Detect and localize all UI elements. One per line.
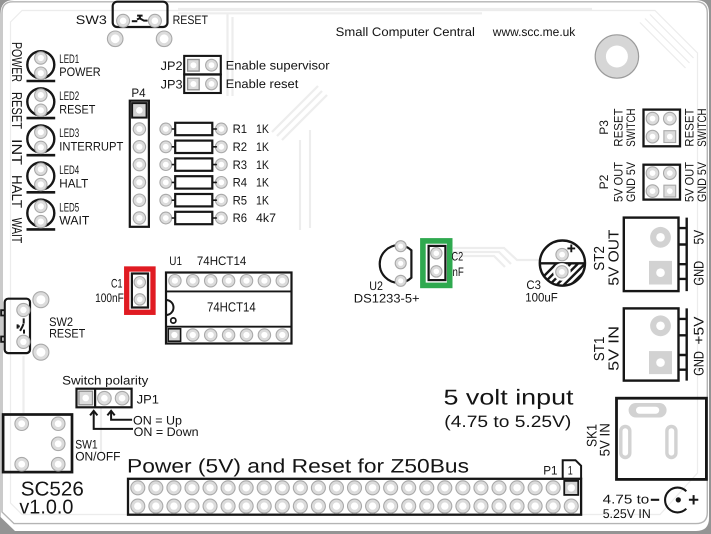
svg-text:R1: R1 — [233, 122, 248, 136]
svg-text:Switch polarity: Switch polarity — [62, 374, 149, 388]
svg-text:LED3: LED3 — [59, 126, 79, 140]
svg-text:INT: INT — [8, 139, 24, 165]
svg-text:5V IN: 5V IN — [596, 423, 612, 456]
svg-text:1K: 1K — [256, 176, 270, 190]
svg-text:74HCT14: 74HCT14 — [197, 254, 247, 268]
svg-text:LED1: LED1 — [59, 52, 79, 66]
svg-text:P1: P1 — [543, 463, 557, 477]
svg-text:JP3: JP3 — [161, 78, 183, 92]
svg-text:U1: U1 — [169, 254, 182, 268]
svg-text:Enable reset: Enable reset — [226, 77, 299, 91]
svg-text:ON = Down: ON = Down — [134, 425, 199, 439]
svg-text:1K: 1K — [256, 122, 270, 136]
svg-text:LED4: LED4 — [59, 163, 79, 177]
svg-text:ON/OFF: ON/OFF — [75, 449, 121, 463]
svg-text:GND: GND — [691, 351, 707, 376]
svg-text:SWITCH: SWITCH — [624, 109, 638, 147]
svg-text:5 volt input: 5 volt input — [444, 386, 574, 410]
svg-text:R3: R3 — [233, 158, 248, 172]
svg-text:R5: R5 — [233, 193, 248, 207]
svg-text:100nF: 100nF — [95, 291, 124, 305]
svg-text:4k7: 4k7 — [256, 211, 276, 225]
svg-text:Power (5V) and Reset for Z50Bu: Power (5V) and Reset for Z50Bus — [127, 455, 469, 477]
svg-text:4.75 to: 4.75 to — [603, 492, 650, 507]
svg-text:P4: P4 — [131, 86, 145, 100]
svg-text:RESET: RESET — [59, 102, 95, 116]
svg-text:JP1: JP1 — [137, 392, 159, 406]
svg-text:GND 5V: GND 5V — [624, 161, 638, 202]
svg-text:R4: R4 — [233, 176, 248, 190]
svg-text:v1.0.0: v1.0.0 — [19, 497, 73, 519]
svg-text:5.25V IN: 5.25V IN — [603, 506, 651, 521]
svg-text:HALT: HALT — [8, 175, 24, 208]
svg-text:1: 1 — [568, 464, 573, 478]
svg-text:RESET: RESET — [8, 92, 24, 129]
svg-text:www.scc.me.uk: www.scc.me.uk — [492, 25, 576, 39]
svg-text:POWER: POWER — [59, 65, 100, 79]
svg-text:100uF: 100uF — [525, 291, 558, 305]
svg-text:74HCT14: 74HCT14 — [207, 299, 256, 314]
svg-text:nF: nF — [453, 265, 465, 279]
svg-text:JP2: JP2 — [161, 59, 183, 73]
svg-text:P2: P2 — [597, 174, 611, 189]
svg-text:1K: 1K — [256, 140, 270, 154]
svg-text:SWITCH: SWITCH — [695, 109, 709, 147]
svg-text:GND: GND — [691, 261, 707, 286]
svg-text:ST1: ST1 — [592, 337, 608, 362]
svg-text:C1: C1 — [111, 277, 123, 291]
svg-text:R6: R6 — [233, 211, 248, 225]
svg-text:ST2: ST2 — [592, 246, 608, 271]
svg-text:RESET: RESET — [49, 326, 86, 340]
svg-text:WAIT: WAIT — [8, 218, 24, 244]
svg-text:(4.75 to 5.25V): (4.75 to 5.25V) — [444, 413, 571, 431]
svg-text:Small Computer Central: Small Computer Central — [336, 25, 475, 39]
svg-text:INTERRUPT: INTERRUPT — [59, 139, 123, 153]
svg-text:LED5: LED5 — [59, 200, 79, 214]
svg-text:1K: 1K — [256, 158, 270, 172]
svg-text:SW3: SW3 — [76, 13, 107, 27]
svg-text:WAIT: WAIT — [59, 214, 89, 228]
svg-text:C2: C2 — [452, 249, 464, 263]
svg-text:Enable supervisor: Enable supervisor — [226, 59, 330, 73]
svg-text:HALT: HALT — [59, 177, 88, 191]
svg-text:POWER: POWER — [8, 42, 24, 82]
svg-text:LED2: LED2 — [59, 89, 79, 103]
svg-text:DS1233-5+: DS1233-5+ — [354, 292, 420, 306]
svg-text:+5V: +5V — [691, 316, 707, 345]
svg-text:5V OUT: 5V OUT — [607, 229, 623, 285]
svg-text:RESET: RESET — [173, 13, 209, 27]
svg-text:GND 5V: GND 5V — [695, 161, 709, 202]
svg-text:P3: P3 — [597, 120, 611, 135]
svg-text:5V IN: 5V IN — [607, 326, 623, 371]
svg-text:1K: 1K — [256, 193, 270, 207]
svg-text:5V: 5V — [691, 229, 707, 244]
svg-text:R2: R2 — [233, 140, 248, 154]
